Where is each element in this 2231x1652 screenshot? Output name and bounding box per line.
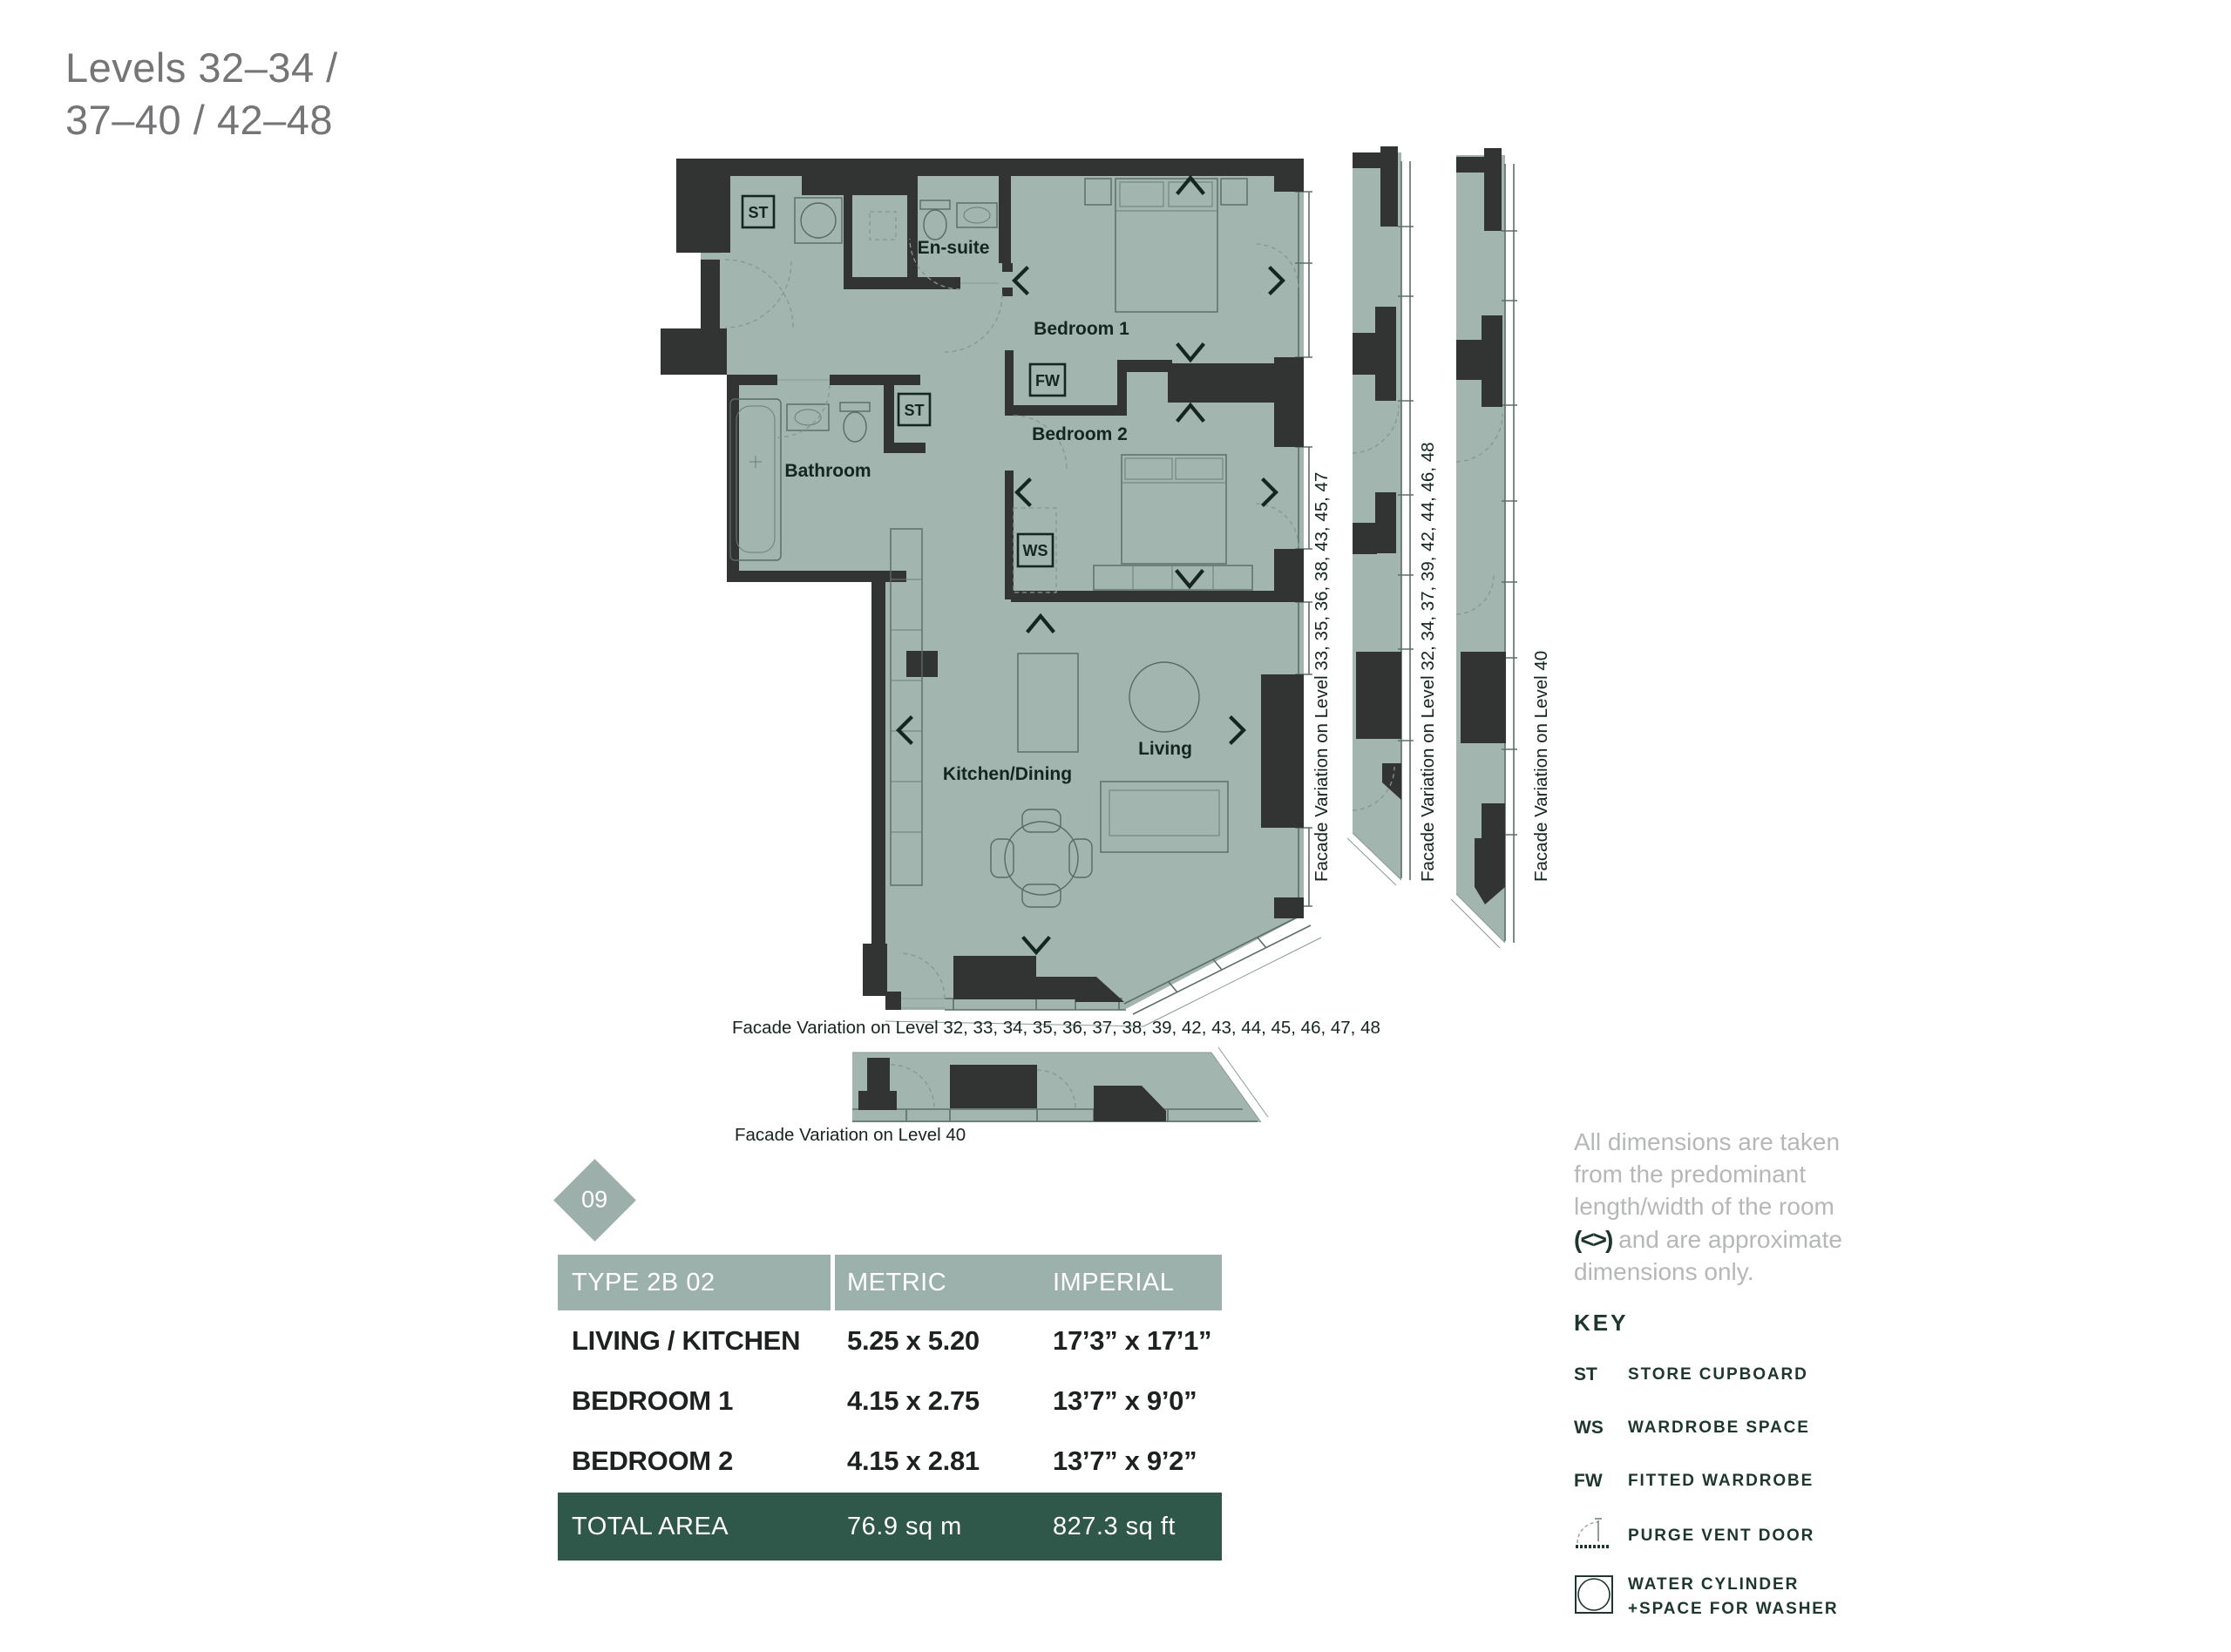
table-row: BEDROOM 1 4.15 x 2.75 13’7” x 9’0”	[558, 1371, 1222, 1431]
caption-level40-strip: Facade Variation on Level 40	[735, 1125, 966, 1145]
row-name: BEDROOM 2	[558, 1445, 835, 1477]
row-name: LIVING / KITCHEN	[558, 1325, 835, 1357]
key-label-line2: +SPACE FOR WASHER	[1628, 1597, 1839, 1622]
table-header-metric: METRIC	[835, 1269, 1051, 1297]
key-title: KEY	[1574, 1310, 1839, 1337]
page-title-line1: Levels 32–34 /	[65, 42, 338, 94]
row-imperial: 13’7” x 9’0”	[1051, 1385, 1222, 1417]
key-label: STORE CUPBOARD	[1628, 1363, 1839, 1387]
key-item-purge-vent-door: PURGE VENT DOOR	[1574, 1517, 1839, 1554]
room-label-ensuite: En-suite	[918, 238, 990, 258]
row-name: BEDROOM 1	[558, 1385, 835, 1417]
st-cupboard-label-1: ST	[748, 204, 768, 221]
main-unit-plan: ST ST FW WS En-suite Bedroom 1 Bedroom 2…	[661, 159, 1321, 1026]
row-metric: 4.15 x 2.75	[835, 1385, 1051, 1417]
dimensions-note: All dimensions are taken from the predom…	[1574, 1126, 1867, 1288]
table-header-imperial: IMPERIAL	[1051, 1269, 1222, 1297]
key-item-water-cylinder: WATER CYLINDER +SPACE FOR WASHER	[1574, 1573, 1839, 1621]
key-item-store-cupboard: ST STORE CUPBOARD	[1574, 1357, 1839, 1392]
room-label-living: Living	[1138, 739, 1192, 759]
row-metric: 4.15 x 2.81	[835, 1445, 1051, 1477]
floorplan-page: Levels 32–34 / 37–40 / 42–48	[0, 0, 2231, 1652]
room-label-kitchen: Kitchen/Dining	[943, 764, 1072, 784]
key-abbr-st: ST	[1574, 1364, 1628, 1385]
key-label: PURGE VENT DOOR	[1628, 1524, 1839, 1548]
water-cylinder-icon	[1574, 1574, 1628, 1619]
table-header-row: TYPE 2B 02 METRIC IMPERIAL	[558, 1255, 1222, 1310]
key-legend: KEY ST STORE CUPBOARD WS WARDROBE SPACE …	[1574, 1310, 1839, 1639]
row-imperial: 13’7” x 9’2”	[1051, 1445, 1222, 1477]
caption-side-facade-2: Facade Variation on Level 32, 34, 37, 39…	[1418, 442, 1438, 882]
table-row: LIVING / KITCHEN 5.25 x 5.20 17’3” x 17’…	[558, 1310, 1222, 1371]
facade-strip-bottom	[852, 1047, 1268, 1122]
key-label: WARDROBE SPACE	[1628, 1416, 1839, 1440]
purge-vent-door-icon	[1574, 1517, 1628, 1554]
row-imperial: 17’3” x 17’1”	[1051, 1325, 1222, 1357]
total-imperial: 827.3 sq ft	[1051, 1513, 1222, 1541]
table-total-row: TOTAL AREA 76.9 sq m 827.3 sq ft	[558, 1493, 1222, 1561]
caption-side-facade-3: Facade Variation on Level 40	[1531, 651, 1551, 882]
floor-plan: ST ST FW WS En-suite Bedroom 1 Bedroom 2…	[645, 131, 1595, 1176]
room-label-bathroom: Bathroom	[784, 461, 871, 481]
fitted-wardrobe-label: FW	[1035, 372, 1060, 389]
table-header-type: TYPE 2B 02	[558, 1255, 835, 1310]
key-abbr-fw: FW	[1574, 1471, 1628, 1492]
table-row: BEDROOM 2 4.15 x 2.81 13’7” x 9’2”	[558, 1431, 1222, 1491]
key-item-fitted-wardrobe: FW FITTED WARDROBE	[1574, 1464, 1839, 1499]
key-abbr-ws: WS	[1574, 1418, 1628, 1439]
caption-main-facade: Facade Variation on Level 32, 33, 34, 35…	[732, 1018, 1380, 1038]
wardrobe-space-label: WS	[1023, 542, 1048, 559]
facade-strip-2	[1451, 148, 1517, 948]
row-metric: 5.25 x 5.20	[835, 1325, 1051, 1357]
note-text-2: and are approximate dimensions only.	[1574, 1226, 1842, 1285]
room-label-bedroom1: Bedroom 1	[1034, 319, 1129, 339]
page-title: Levels 32–34 / 37–40 / 42–48	[65, 42, 338, 146]
page-title-line2: 37–40 / 42–48	[65, 94, 338, 146]
unit-number-badge: 09	[553, 1159, 636, 1242]
st-cupboard-label-2: ST	[904, 402, 924, 419]
key-label: WATER CYLINDER +SPACE FOR WASHER	[1628, 1573, 1839, 1621]
note-text-1: All dimensions are taken from the predom…	[1574, 1128, 1840, 1220]
total-name: TOTAL AREA	[558, 1513, 835, 1541]
unit-number: 09	[581, 1187, 607, 1214]
key-item-wardrobe-space: WS WARDROBE SPACE	[1574, 1411, 1839, 1445]
unit-floor-area	[661, 159, 1304, 1010]
key-label: FITTED WARDROBE	[1628, 1469, 1839, 1493]
caption-side-facade-1: Facade Variation on Level 33, 35, 36, 38…	[1312, 472, 1332, 882]
total-metric: 76.9 sq m	[835, 1513, 1051, 1541]
key-label-line1: WATER CYLINDER	[1628, 1573, 1839, 1597]
facade-strip-1	[1347, 146, 1414, 885]
room-label-bedroom2: Bedroom 2	[1032, 424, 1128, 444]
dimension-arrows-symbol: (<>)	[1574, 1226, 1611, 1253]
dimensions-table: TYPE 2B 02 METRIC IMPERIAL LIVING / KITC…	[558, 1255, 1222, 1561]
